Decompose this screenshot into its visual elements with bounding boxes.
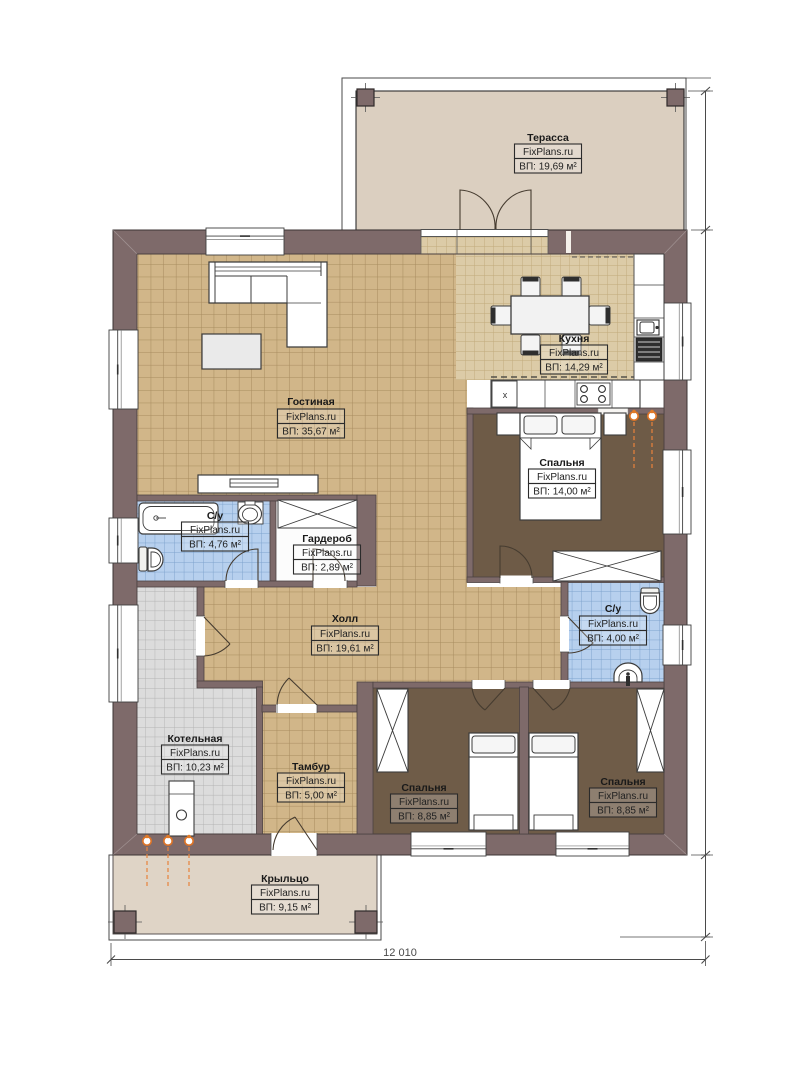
svg-text:Кухня: Кухня xyxy=(559,333,590,345)
svg-text:ВП: 10,23 м²: ВП: 10,23 м² xyxy=(166,763,224,774)
svg-text:FixPlans.ru: FixPlans.ru xyxy=(399,797,449,808)
svg-text:Тамбур: Тамбур xyxy=(292,761,330,773)
svg-text:FixPlans.ru: FixPlans.ru xyxy=(286,412,336,423)
svg-text:FixPlans.ru: FixPlans.ru xyxy=(320,629,370,640)
svg-text:ВП: 4,00 м²: ВП: 4,00 м² xyxy=(587,634,640,645)
svg-text:Спальня: Спальня xyxy=(600,776,645,788)
svg-text:Спальня: Спальня xyxy=(539,457,584,469)
svg-text:FixPlans.ru: FixPlans.ru xyxy=(286,776,336,787)
svg-text:Холл: Холл xyxy=(332,613,358,625)
svg-text:ВП: 8,85 м²: ВП: 8,85 м² xyxy=(597,806,650,817)
svg-text:FixPlans.ru: FixPlans.ru xyxy=(588,619,638,630)
svg-text:FixPlans.ru: FixPlans.ru xyxy=(598,791,648,802)
svg-text:ВП: 2,89 м²: ВП: 2,89 м² xyxy=(301,563,354,574)
svg-text:ВП: 14,00 м²: ВП: 14,00 м² xyxy=(533,487,591,498)
svg-text:С/у: С/у xyxy=(605,603,622,615)
svg-text:ВП: 8,85 м²: ВП: 8,85 м² xyxy=(398,812,451,823)
svg-text:Котельная: Котельная xyxy=(168,733,223,745)
svg-text:ВП: 14,29 м²: ВП: 14,29 м² xyxy=(545,363,603,374)
svg-text:ВП: 9,15 м²: ВП: 9,15 м² xyxy=(259,903,312,914)
svg-text:FixPlans.ru: FixPlans.ru xyxy=(260,888,310,899)
svg-text:FixPlans.ru: FixPlans.ru xyxy=(170,748,220,759)
svg-text:Терасса: Терасса xyxy=(527,132,569,144)
svg-text:ВП: 5,00 м²: ВП: 5,00 м² xyxy=(285,791,338,802)
svg-text:ВП: 35,67 м²: ВП: 35,67 м² xyxy=(282,427,340,438)
svg-text:FixPlans.ru: FixPlans.ru xyxy=(302,548,352,559)
svg-text:x: x xyxy=(503,390,508,400)
svg-text:Крыльцо: Крыльцо xyxy=(261,873,309,885)
svg-text:Гардероб: Гардероб xyxy=(302,533,352,545)
svg-text:С/у: С/у xyxy=(207,510,224,522)
svg-text:FixPlans.ru: FixPlans.ru xyxy=(190,525,240,536)
svg-text:12 010: 12 010 xyxy=(383,947,417,959)
svg-text:FixPlans.ru: FixPlans.ru xyxy=(523,147,573,158)
svg-text:FixPlans.ru: FixPlans.ru xyxy=(537,472,587,483)
svg-text:FixPlans.ru: FixPlans.ru xyxy=(549,348,599,359)
svg-text:Спальня: Спальня xyxy=(401,782,446,794)
svg-text:Гостиная: Гостиная xyxy=(287,396,334,408)
svg-text:ВП: 19,61 м²: ВП: 19,61 м² xyxy=(316,644,374,655)
svg-text:ВП: 4,76 м²: ВП: 4,76 м² xyxy=(189,540,242,551)
svg-text:ВП: 19,69 м²: ВП: 19,69 м² xyxy=(519,162,577,173)
